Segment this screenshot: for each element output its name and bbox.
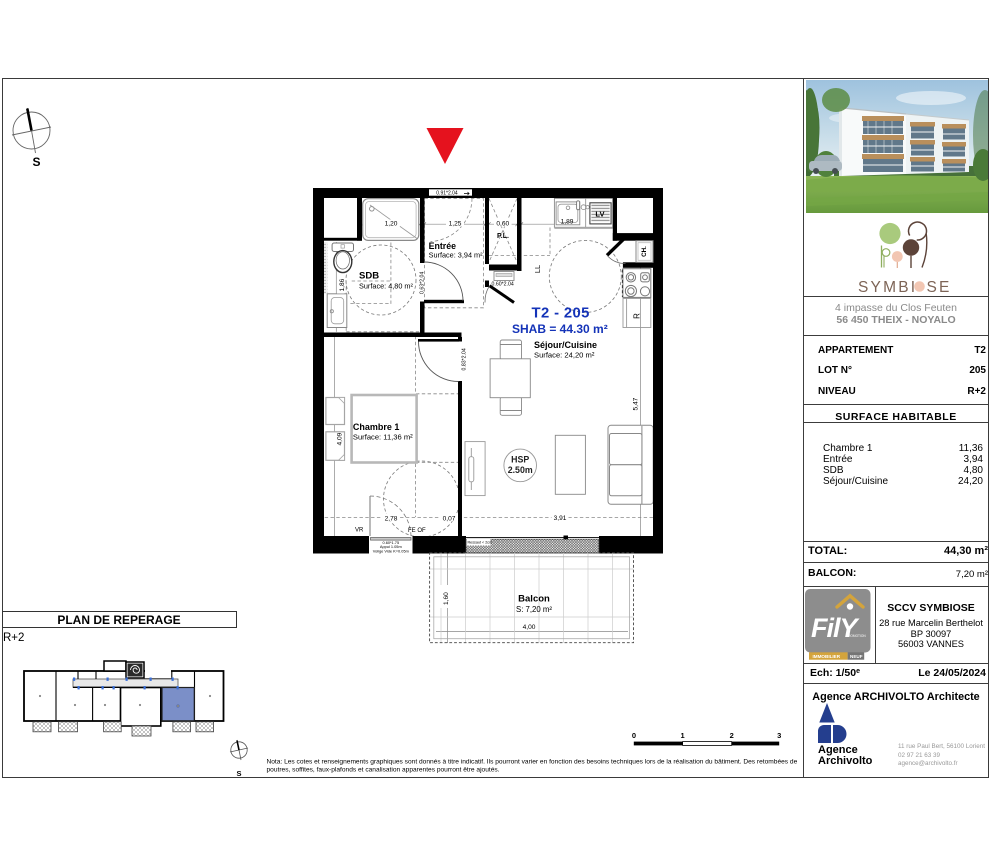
svg-text:PROMOTION: PROMOTION (846, 634, 866, 638)
svg-text:1,60: 1,60 (443, 592, 450, 605)
svg-text:R: R (633, 313, 642, 319)
svg-text:Surface: 11,36 m²: Surface: 11,36 m² (353, 433, 413, 442)
svg-text:S: S (236, 769, 241, 778)
svg-text:2: 2 (730, 731, 734, 740)
svg-text:CH.: CH. (641, 246, 648, 257)
svg-text:1,86: 1,86 (339, 278, 346, 291)
svg-text:Surface: 24,20 m²: Surface: 24,20 m² (534, 351, 595, 360)
svg-text:PLAN DE REPERAGE: PLAN DE REPERAGE (57, 613, 180, 627)
svg-text:Chambre 1: Chambre 1 (353, 422, 400, 432)
svg-text:FE OF: FE OF (408, 528, 426, 534)
svg-text:0,07: 0,07 (443, 515, 456, 522)
svg-text:FilY: FilY (811, 613, 860, 643)
svg-text:VR: VR (355, 528, 364, 534)
svg-text:SE: SE (927, 279, 952, 296)
svg-text:LL: LL (533, 265, 542, 273)
svg-text:5,47: 5,47 (632, 397, 639, 410)
svg-text:2,78: 2,78 (385, 515, 398, 522)
svg-text:SYMBI: SYMBI (858, 279, 917, 296)
svg-text:IMMOBILIER: IMMOBILIER (813, 654, 841, 659)
svg-text:Surface: 4,80 m²: Surface: 4,80 m² (359, 281, 414, 290)
svg-text:Volige Vide K=0.05m: Volige Vide K=0.05m (373, 549, 409, 554)
svg-text:0,60: 0,60 (496, 220, 509, 227)
svg-text:4,09: 4,09 (336, 432, 343, 445)
svg-text:0: 0 (632, 731, 636, 740)
svg-text:Entrée: Entrée (429, 241, 456, 251)
svg-text:0.83*2.04: 0.83*2.04 (462, 348, 468, 370)
svg-text:poutres, soffites, faux-plafon: poutres, soffites, faux-plafonds et cana… (267, 767, 500, 774)
svg-text:1,89: 1,89 (561, 219, 574, 226)
svg-text:3: 3 (777, 731, 781, 740)
svg-text:T2 - 205: T2 - 205 (532, 306, 590, 322)
svg-text:0.91*2.04: 0.91*2.04 (436, 190, 458, 196)
svg-text:S: S (32, 155, 40, 169)
svg-text:1: 1 (681, 731, 685, 740)
svg-text:1,25: 1,25 (449, 220, 462, 227)
svg-text:Nota: Les cotes et renseigneme: Nota: Les cotes et renseignements graphi… (267, 759, 798, 766)
svg-text:S: 7,20 m²: S: 7,20 m² (516, 605, 552, 614)
svg-text:2.50m: 2.50m (508, 465, 533, 475)
svg-text:1,20: 1,20 (385, 220, 398, 227)
svg-text:LV: LV (595, 210, 605, 219)
svg-text:0.60*2.04: 0.60*2.04 (492, 281, 514, 287)
svg-text:SHAB = 44.30 m²: SHAB = 44.30 m² (512, 322, 608, 336)
svg-text:HSP: HSP (511, 455, 529, 465)
svg-text:Séjour/Cuisine: Séjour/Cuisine (534, 340, 597, 350)
svg-text:P.L.: P.L. (497, 233, 509, 240)
svg-text:0.63*2.04: 0.63*2.04 (419, 272, 425, 294)
svg-text:Surface: 3,94 m²: Surface: 3,94 m² (429, 251, 484, 260)
svg-text:Ressaut < 2cm: Ressaut < 2cm (468, 541, 493, 545)
svg-text:4,00: 4,00 (523, 624, 536, 631)
svg-text:3,91: 3,91 (554, 515, 567, 522)
svg-text:SDB: SDB (359, 271, 379, 282)
svg-text:NEUF: NEUF (850, 654, 863, 659)
svg-text:Balcon: Balcon (518, 594, 550, 605)
svg-text:R+2: R+2 (3, 632, 24, 644)
